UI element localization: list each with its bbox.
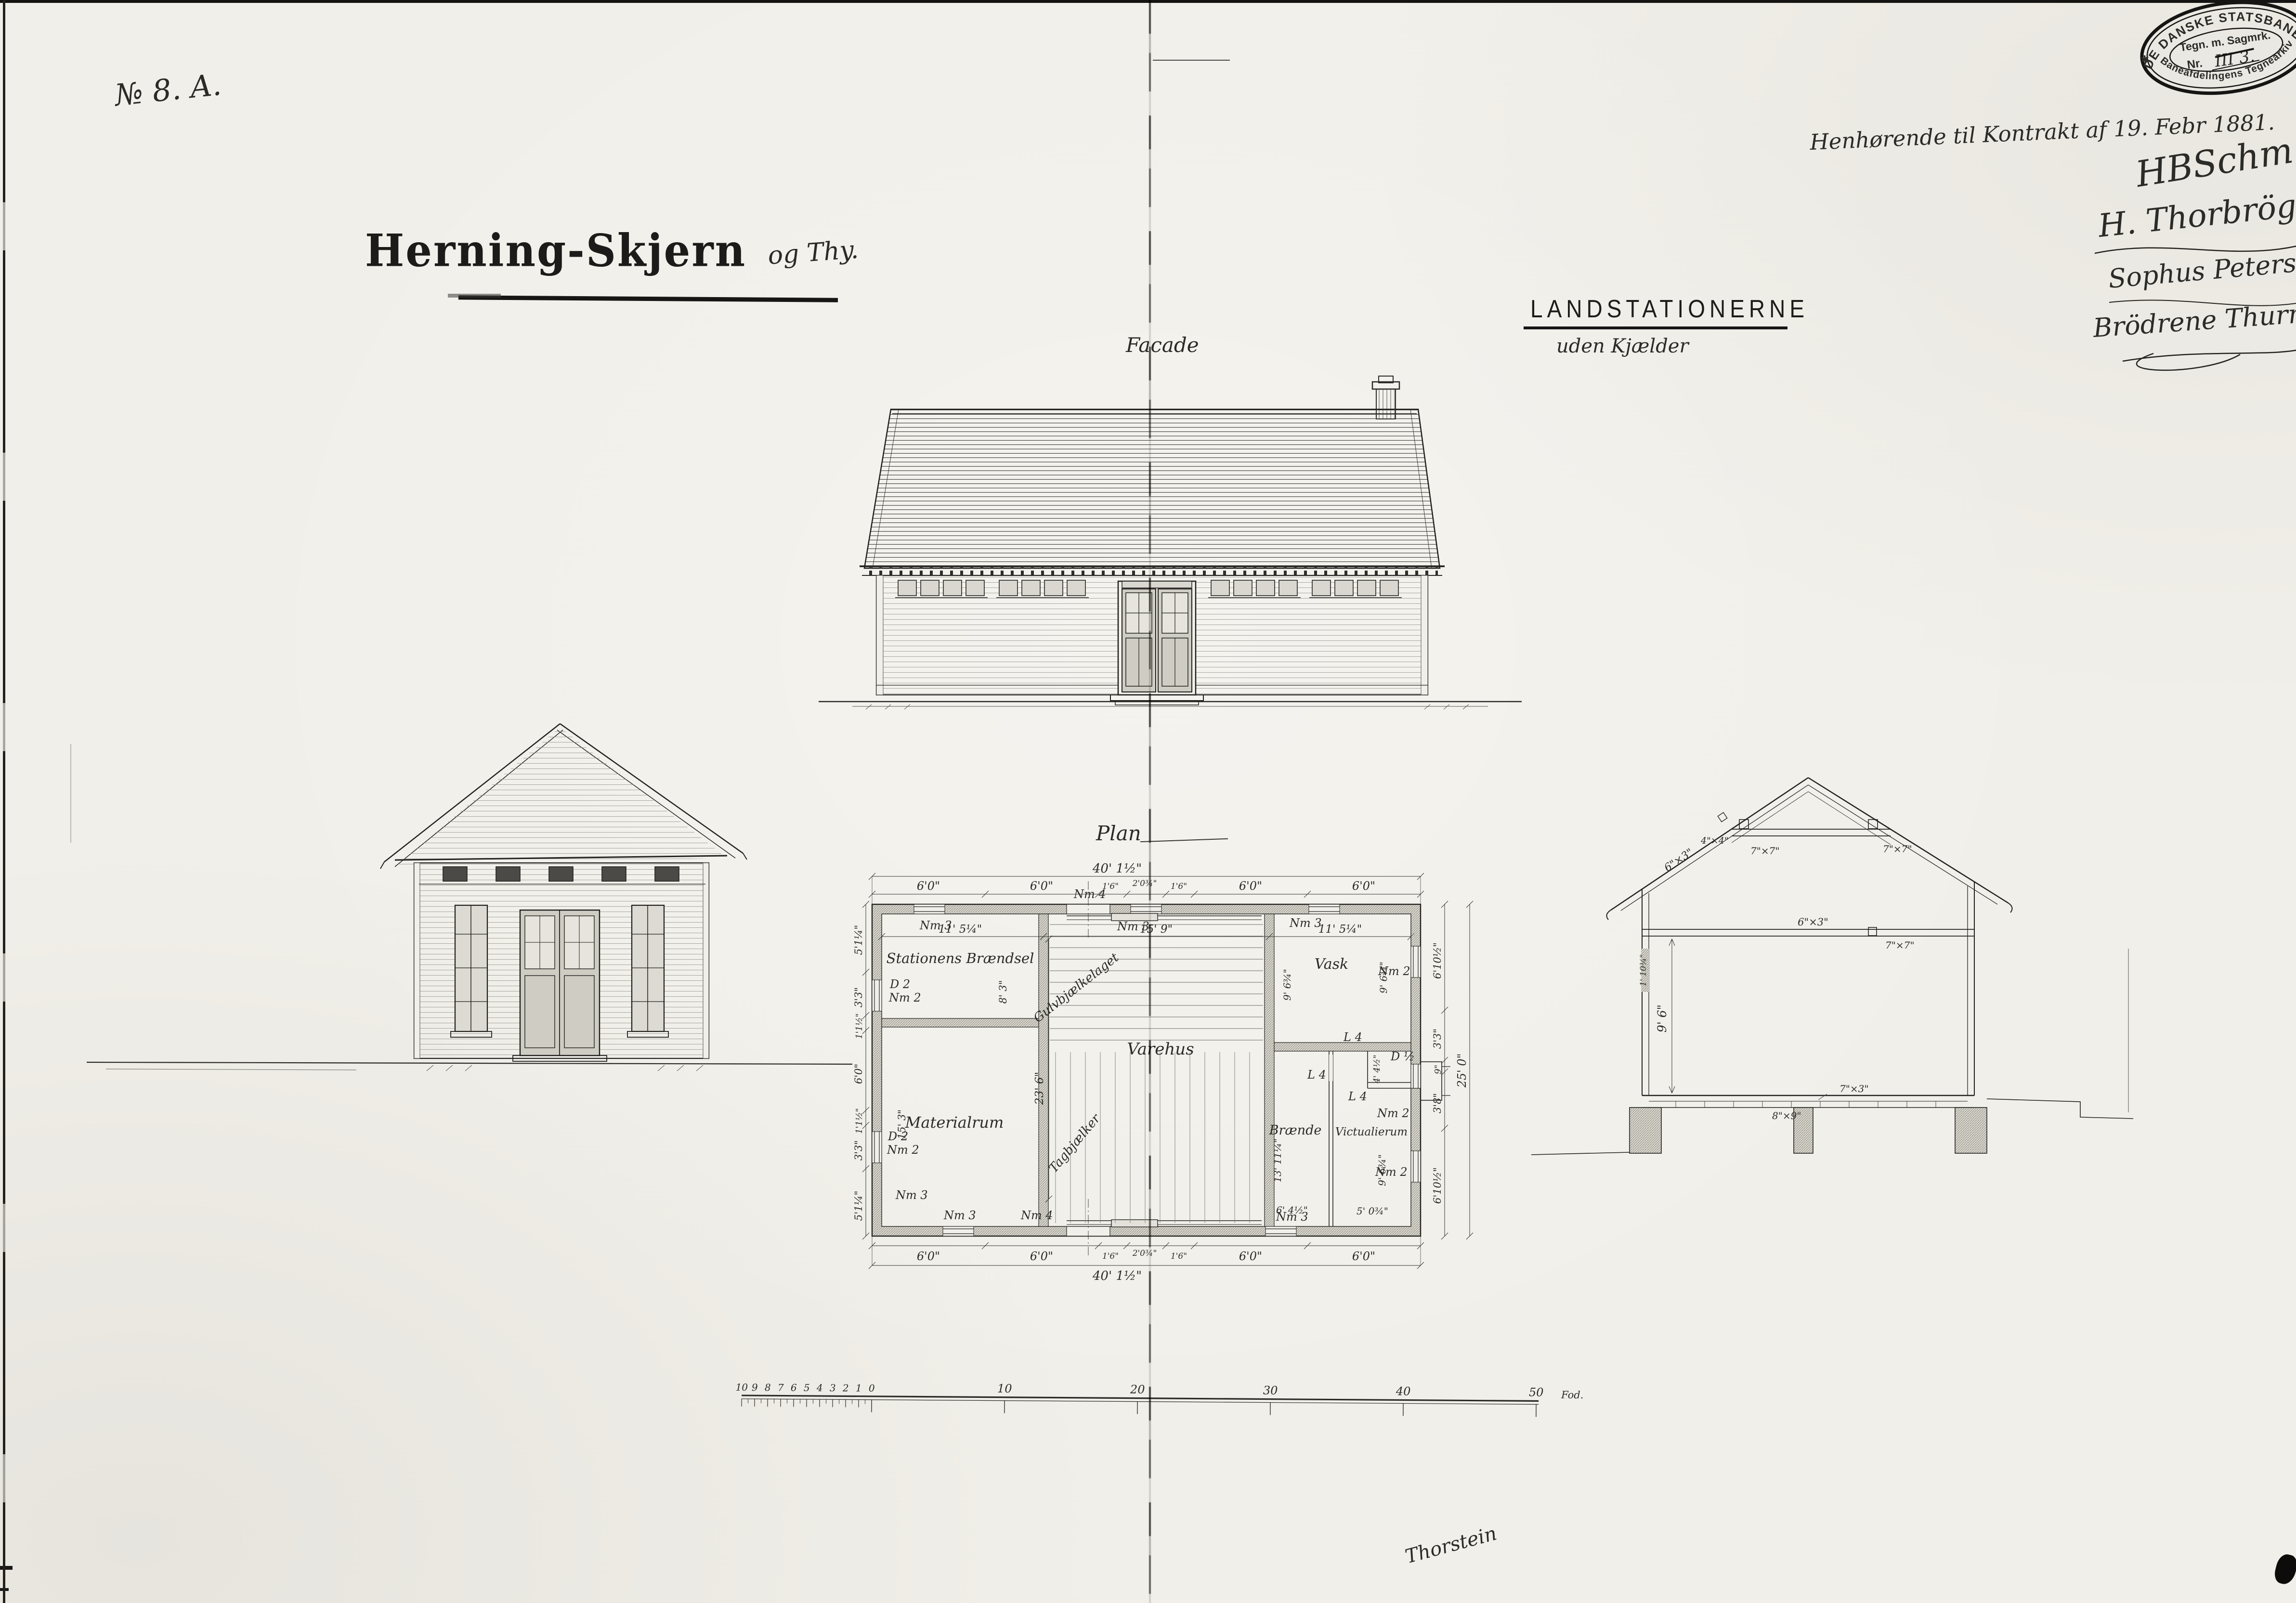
dim-bot-6: 6'0" bbox=[1239, 1250, 1262, 1263]
dim-ceiling-beam: 6"×3" bbox=[1798, 916, 1828, 928]
label-tagbjaelker: Tagbjælker bbox=[1046, 1111, 1104, 1175]
section-dimension-labels: 6"×3" 4"×4" 7"×7" 7"×7" 6"×3" 7"×7" 9' 6… bbox=[1639, 835, 1915, 1121]
gable-window-right bbox=[627, 905, 668, 1037]
marker: D ½ bbox=[1390, 1050, 1415, 1063]
dim-top-6: 6'0" bbox=[1239, 879, 1262, 893]
sheet-number: № 8. A. bbox=[113, 67, 223, 113]
signature-2: H. Thorbrög bbox=[2096, 187, 2296, 245]
archive-stamp: DE DANSKE STATSBANER Tegn. m. Sagmrk. Nr… bbox=[2131, 0, 2296, 109]
marker: L 4 bbox=[1343, 1030, 1362, 1044]
facade-elevation-drawing bbox=[819, 373, 1522, 713]
drawing-sheet: № 8. A. Herning-Skjern og Thy. DE DANSKE… bbox=[0, 0, 2296, 1603]
dim-bot-3: 1'6" bbox=[1102, 1251, 1119, 1261]
bottom-signature: Thorstein bbox=[1403, 1523, 1499, 1568]
marker: Nm 3 bbox=[943, 1209, 976, 1222]
dim-right-3: 9" bbox=[1433, 1065, 1443, 1074]
dim-vask-1: 9' 6¾" bbox=[1281, 969, 1293, 1001]
marker: Nm 3 bbox=[1276, 1210, 1308, 1224]
marker: Nm 3 bbox=[1117, 920, 1149, 933]
scale-minor: 2 bbox=[842, 1382, 849, 1394]
room-varehus: Varehus bbox=[1127, 1040, 1194, 1059]
marker: D 2 bbox=[889, 977, 910, 991]
stamp-star-left: ✱ bbox=[2140, 53, 2151, 66]
scale-minor: 1 bbox=[856, 1382, 862, 1394]
dim-vict-w: 5' 0¾" bbox=[1357, 1205, 1388, 1217]
marker: Nm 3 bbox=[895, 1188, 928, 1202]
scan-mark bbox=[0, 1566, 13, 1570]
gable-elevation-drawing bbox=[87, 708, 867, 1088]
dim-left-5: 1'1½" bbox=[854, 1108, 864, 1134]
drawing-subheading: uden Kjælder bbox=[1556, 335, 1689, 357]
scale-major: 50 bbox=[1529, 1385, 1544, 1399]
plan-view-label: Plan bbox=[1096, 821, 1141, 845]
dim-top-2: 6'0" bbox=[1030, 879, 1053, 893]
scan-left-edge bbox=[3, 0, 5, 1603]
dim-room-height: 9' 6" bbox=[1655, 1004, 1669, 1032]
paper-fold-line bbox=[1149, 0, 1151, 1603]
title-suffix: og Thy. bbox=[767, 235, 860, 271]
signature-4: Brödrene Thurn bbox=[2092, 298, 2296, 343]
scan-corner-blot bbox=[2272, 1552, 2296, 1586]
room-victualierum: Victualierum bbox=[1335, 1126, 1408, 1138]
section-foundation bbox=[1531, 949, 2133, 1155]
section-floor bbox=[1642, 1095, 1974, 1108]
dim-overall-top: 40' 1½" bbox=[1092, 861, 1142, 876]
signature-3: Sophus Peterse bbox=[2107, 246, 2296, 294]
dim-varehus: 23' 6" bbox=[1033, 1072, 1046, 1105]
dim-sill: 8"×9" bbox=[1772, 1110, 1801, 1121]
dim-left-4: 6'0" bbox=[853, 1064, 864, 1084]
dim-wall-note: 1' 10¾" bbox=[1639, 954, 1648, 987]
dim-left-6: 3'3" bbox=[853, 1140, 864, 1160]
section-drawing: 6"×3" 4"×4" 7"×7" 7"×7" 6"×3" 7"×7" 9' 6… bbox=[1531, 742, 2152, 1180]
dim-right-2: 3'3" bbox=[1432, 1029, 1443, 1049]
scale-unit: Fod. bbox=[1561, 1389, 1583, 1401]
dim-right-5: 6'10½" bbox=[1432, 1167, 1443, 1204]
heading-underline bbox=[1524, 326, 1787, 329]
marker: L 4 bbox=[1307, 1068, 1326, 1082]
facade-view-label: Facade bbox=[1126, 333, 1199, 357]
scale-minor: 6 bbox=[791, 1382, 797, 1394]
dim-bot-2: 6'0" bbox=[1030, 1250, 1053, 1263]
dim-purlin: 4"×4" bbox=[1700, 835, 1729, 846]
dim-left-1: 5'1¼" bbox=[853, 925, 864, 955]
dim-left-2: 3'3" bbox=[853, 987, 864, 1007]
marker: Nm 2 bbox=[888, 991, 921, 1004]
scale-minor: 3 bbox=[830, 1382, 836, 1394]
marker: L 4 bbox=[1348, 1090, 1367, 1103]
dim-right-1: 6'10½" bbox=[1432, 942, 1443, 979]
facade-ground-line bbox=[819, 702, 1522, 709]
dim-ceiling-post: 7"×7" bbox=[1885, 939, 1915, 951]
dim-bot-5: 1'6" bbox=[1171, 1251, 1187, 1261]
scale-major: 30 bbox=[1263, 1383, 1278, 1397]
plan-drawing: 6'0" 6'0" 1'6" 2'0¾" 1'6" 6'0" 6'0" 40' … bbox=[848, 862, 1570, 1430]
dim-bot-1: 6'0" bbox=[917, 1250, 940, 1263]
section-collar-beam bbox=[1718, 812, 1891, 836]
dim-braendsel: 8' 3" bbox=[997, 980, 1009, 1004]
room-vask: Vask bbox=[1315, 956, 1348, 973]
dim-collar-post-2: 7"×7" bbox=[1883, 843, 1912, 855]
signature-block: HBSchm H. Thorbrög Sophus Peterse Brödre… bbox=[2081, 141, 2296, 352]
plan-label-leader bbox=[1140, 838, 1228, 842]
dim-floor-joist: 7"×3" bbox=[1839, 1083, 1869, 1095]
dim-right-4: 3'8" bbox=[1432, 1093, 1443, 1113]
dim-top-5: 1'6" bbox=[1171, 882, 1187, 891]
scale-major: 20 bbox=[1130, 1383, 1145, 1396]
scale-minor: 10 bbox=[735, 1381, 748, 1393]
title-block: Herning-Skjern og Thy. bbox=[365, 226, 859, 275]
scale-major: 40 bbox=[1396, 1384, 1411, 1398]
drawing-heading: LANDSTATIONERNE bbox=[1530, 294, 1809, 323]
marker: Nm 2 bbox=[887, 1143, 919, 1157]
title-underline-smudge bbox=[448, 294, 501, 298]
fold-tick bbox=[1153, 60, 1230, 61]
dim-top-7: 6'0" bbox=[1352, 879, 1375, 893]
marker: Nm 2 bbox=[1377, 1107, 1409, 1120]
dim-bot-4: 2'0¾" bbox=[1132, 1249, 1157, 1258]
marker: D 2 bbox=[887, 1130, 908, 1143]
dim-overall-depth: 25' 0" bbox=[1455, 1053, 1469, 1088]
gable-ground-line bbox=[87, 1062, 852, 1071]
facade-cornice bbox=[860, 566, 1445, 575]
marker: Nm 4 bbox=[1073, 887, 1106, 901]
drawing-title: Herning-Skjern bbox=[365, 224, 746, 277]
gable-window-left bbox=[451, 905, 492, 1037]
section-walls bbox=[1641, 882, 1974, 1095]
section-height-dim-line bbox=[1669, 939, 1827, 1100]
facade-roof bbox=[864, 409, 1440, 568]
marker: Nm 4 bbox=[1020, 1209, 1053, 1222]
dim-braende-d: 13' 11¼" bbox=[1272, 1138, 1283, 1182]
scale-bar: 10 9 8 7 6 5 4 3 2 1 0 10 20 30 40 50 Fo… bbox=[732, 1373, 1590, 1442]
scale-minor: 5 bbox=[804, 1382, 810, 1394]
title-underline bbox=[458, 295, 838, 302]
scale-minor: 0 bbox=[869, 1382, 875, 1394]
scale-major: 10 bbox=[997, 1382, 1012, 1395]
dim-lobby: 4' 4½" bbox=[1372, 1055, 1382, 1083]
room-materialrum: Materialrum bbox=[905, 1113, 1004, 1132]
dim-left-3: 1'1½" bbox=[854, 1013, 864, 1039]
section-roof bbox=[1606, 778, 2012, 920]
scale-minor: 8 bbox=[765, 1381, 771, 1393]
scale-minor: 7 bbox=[778, 1381, 784, 1393]
marker: Nm 2 bbox=[1378, 964, 1410, 978]
scale-minor: 9 bbox=[752, 1381, 758, 1393]
dim-inner-right: 11' 5¼" bbox=[1318, 923, 1362, 936]
dim-left-7: 5'1¼" bbox=[853, 1191, 864, 1221]
dim-rafter: 6"×3" bbox=[1662, 847, 1696, 874]
gable-double-door bbox=[513, 910, 607, 1061]
room-braendsel: Stationens Brændsel bbox=[887, 950, 1034, 966]
signature-flourish bbox=[2123, 348, 2296, 370]
section-ceiling bbox=[1642, 927, 1974, 936]
dim-collar-post-1: 7"×7" bbox=[1750, 845, 1780, 857]
facade-double-door bbox=[1110, 581, 1203, 705]
dim-top-1: 6'0" bbox=[917, 879, 940, 893]
scale-minor: 4 bbox=[816, 1382, 823, 1394]
marker: Nm 3 bbox=[919, 919, 952, 932]
marker: Nm 2 bbox=[1375, 1165, 1408, 1179]
marker: Nm 3 bbox=[1289, 916, 1322, 930]
scan-top-edge bbox=[0, 0, 2296, 3]
gable-roof bbox=[380, 724, 747, 869]
dim-top-4: 2'0¾" bbox=[1132, 879, 1157, 888]
dim-bot-7: 6'0" bbox=[1352, 1250, 1375, 1263]
pencil-line bbox=[70, 744, 71, 843]
dim-overall-bottom: 40' 1½" bbox=[1092, 1269, 1142, 1283]
room-braende: Brænde bbox=[1269, 1123, 1322, 1138]
